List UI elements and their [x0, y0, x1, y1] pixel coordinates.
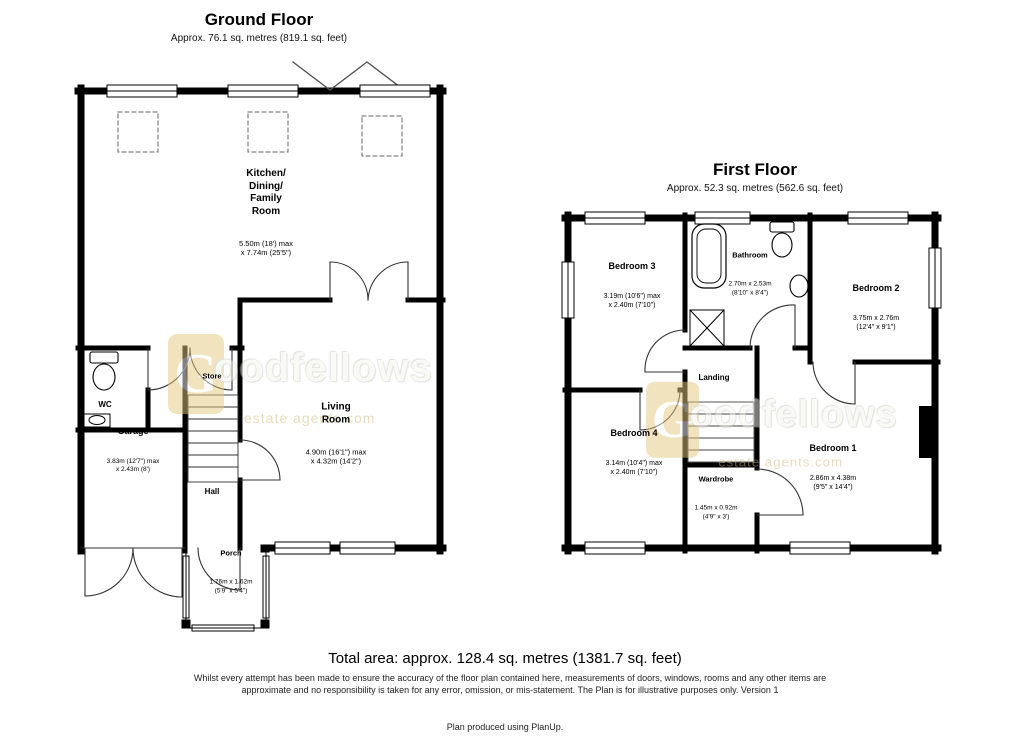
room-dims: 1.76m x 1.62m (5'9" x 5'4") [210, 579, 253, 595]
total-area-text: Total area: approx. 128.4 sq. metres (13… [328, 650, 682, 667]
ground-floor-subtitle: Approx. 76.1 sq. metres (819.1 sq. feet) [171, 33, 347, 44]
room-dims: 2.86m x 4.38m (9'5" x 14'4") [809, 475, 856, 493]
room-label-bedroom3: Bedroom 3 3.19m (10'6") max x 2.40m (7'1… [604, 241, 661, 331]
first-floor-title: First Floor [667, 160, 843, 180]
room-name: Bedroom 3 [604, 261, 661, 272]
room-name: Bedroom 1 [809, 443, 856, 454]
disclaimer-line-2: approximate and no responsibility is tak… [0, 684, 1020, 696]
room-dims: 2.70m x 2.53m (8'10" x 8'4") [729, 281, 772, 297]
ground-floor-title: Ground Floor [171, 10, 347, 30]
room-label-landing: Landing [698, 353, 729, 403]
disclaimer-line-1: Whilst every attempt has been made to en… [0, 672, 1020, 684]
room-label-store: Store [202, 351, 221, 400]
room-dims: 3.14m (10'4") max x 2.40m (7'10") [606, 460, 663, 478]
room-dims: 3.19m (10'6") max x 2.40m (7'10") [604, 293, 661, 311]
first-floor-title-block: First Floor Approx. 52.3 sq. metres (562… [667, 160, 843, 194]
basin-icon [790, 275, 808, 297]
room-label-wardrobe: Wardrobe 1.45m x 0.92m (4'9" x 3') [695, 455, 738, 542]
room-label-hall: Hall [205, 467, 220, 517]
room-dims: 3.83m (12'7") max x 2.43m (8') [107, 458, 160, 474]
room-dims: 3.75m x 2.76m (12'4" x 9'1") [852, 315, 899, 333]
room-name: Garage [107, 426, 160, 437]
toilet-first-icon [770, 222, 794, 257]
room-label-bedroom1: Bedroom 1 2.86m x 4.38m (9'5" x 14'4") [809, 423, 856, 513]
chimney-breast [919, 406, 935, 458]
shower-icon [690, 310, 724, 346]
staircase-first [688, 402, 754, 462]
room-name: Bathroom [729, 251, 772, 260]
room-dims: 5.50m (18') max x 7.74m (25'5") [239, 239, 293, 258]
room-name: Landing [698, 373, 729, 383]
room-label-bedroom4: Bedroom 4 3.14m (10'4") max x 2.40m (7'1… [606, 408, 663, 498]
room-name: Bedroom 4 [606, 428, 663, 439]
floor-plan-drawing [0, 0, 1020, 741]
room-label-kitchen: Kitchen/ Dining/ Family Room 5.50m (18')… [239, 148, 293, 278]
room-label-bedroom2: Bedroom 2 3.75m x 2.76m (12'4" x 9'1") [852, 263, 899, 353]
room-label-garage: Garage 3.83m (12'7") max x 2.43m (8') [107, 406, 160, 495]
room-name: Store [202, 371, 221, 380]
plan-credit-text: Plan produced using PlanUp. [447, 722, 564, 732]
first-floor-subtitle: Approx. 52.3 sq. metres (562.6 sq. feet) [667, 183, 843, 194]
room-name: Wardrobe [695, 475, 738, 484]
disclaimer-text: Whilst every attempt has been made to en… [0, 672, 1020, 696]
room-name: Hall [205, 487, 220, 497]
room-label-porch: Porch 1.76m x 1.62m (5'9" x 5'4") [210, 529, 253, 616]
room-label-bathroom: Bathroom 2.70m x 2.53m (8'10" x 8'4") [729, 231, 772, 318]
room-label-living: Living Room 4.90m (16'1") max x 4.32m (1… [306, 382, 367, 487]
ground-floor-title-block: Ground Floor Approx. 76.1 sq. metres (81… [171, 10, 347, 44]
room-name: Bedroom 2 [852, 283, 899, 294]
floor-plan-page: G oodfellows estate agents.com G oodfell… [0, 0, 1020, 741]
room-dims: 1.45m x 0.92m (4'9" x 3') [695, 505, 738, 521]
room-name: Living Room [306, 402, 367, 427]
bathtub-icon [692, 224, 726, 288]
room-dims: 4.90m (16'1") max x 4.32m (14'2") [306, 448, 367, 467]
room-name: Porch [210, 549, 253, 558]
room-name: Kitchen/ Dining/ Family Room [239, 168, 293, 218]
